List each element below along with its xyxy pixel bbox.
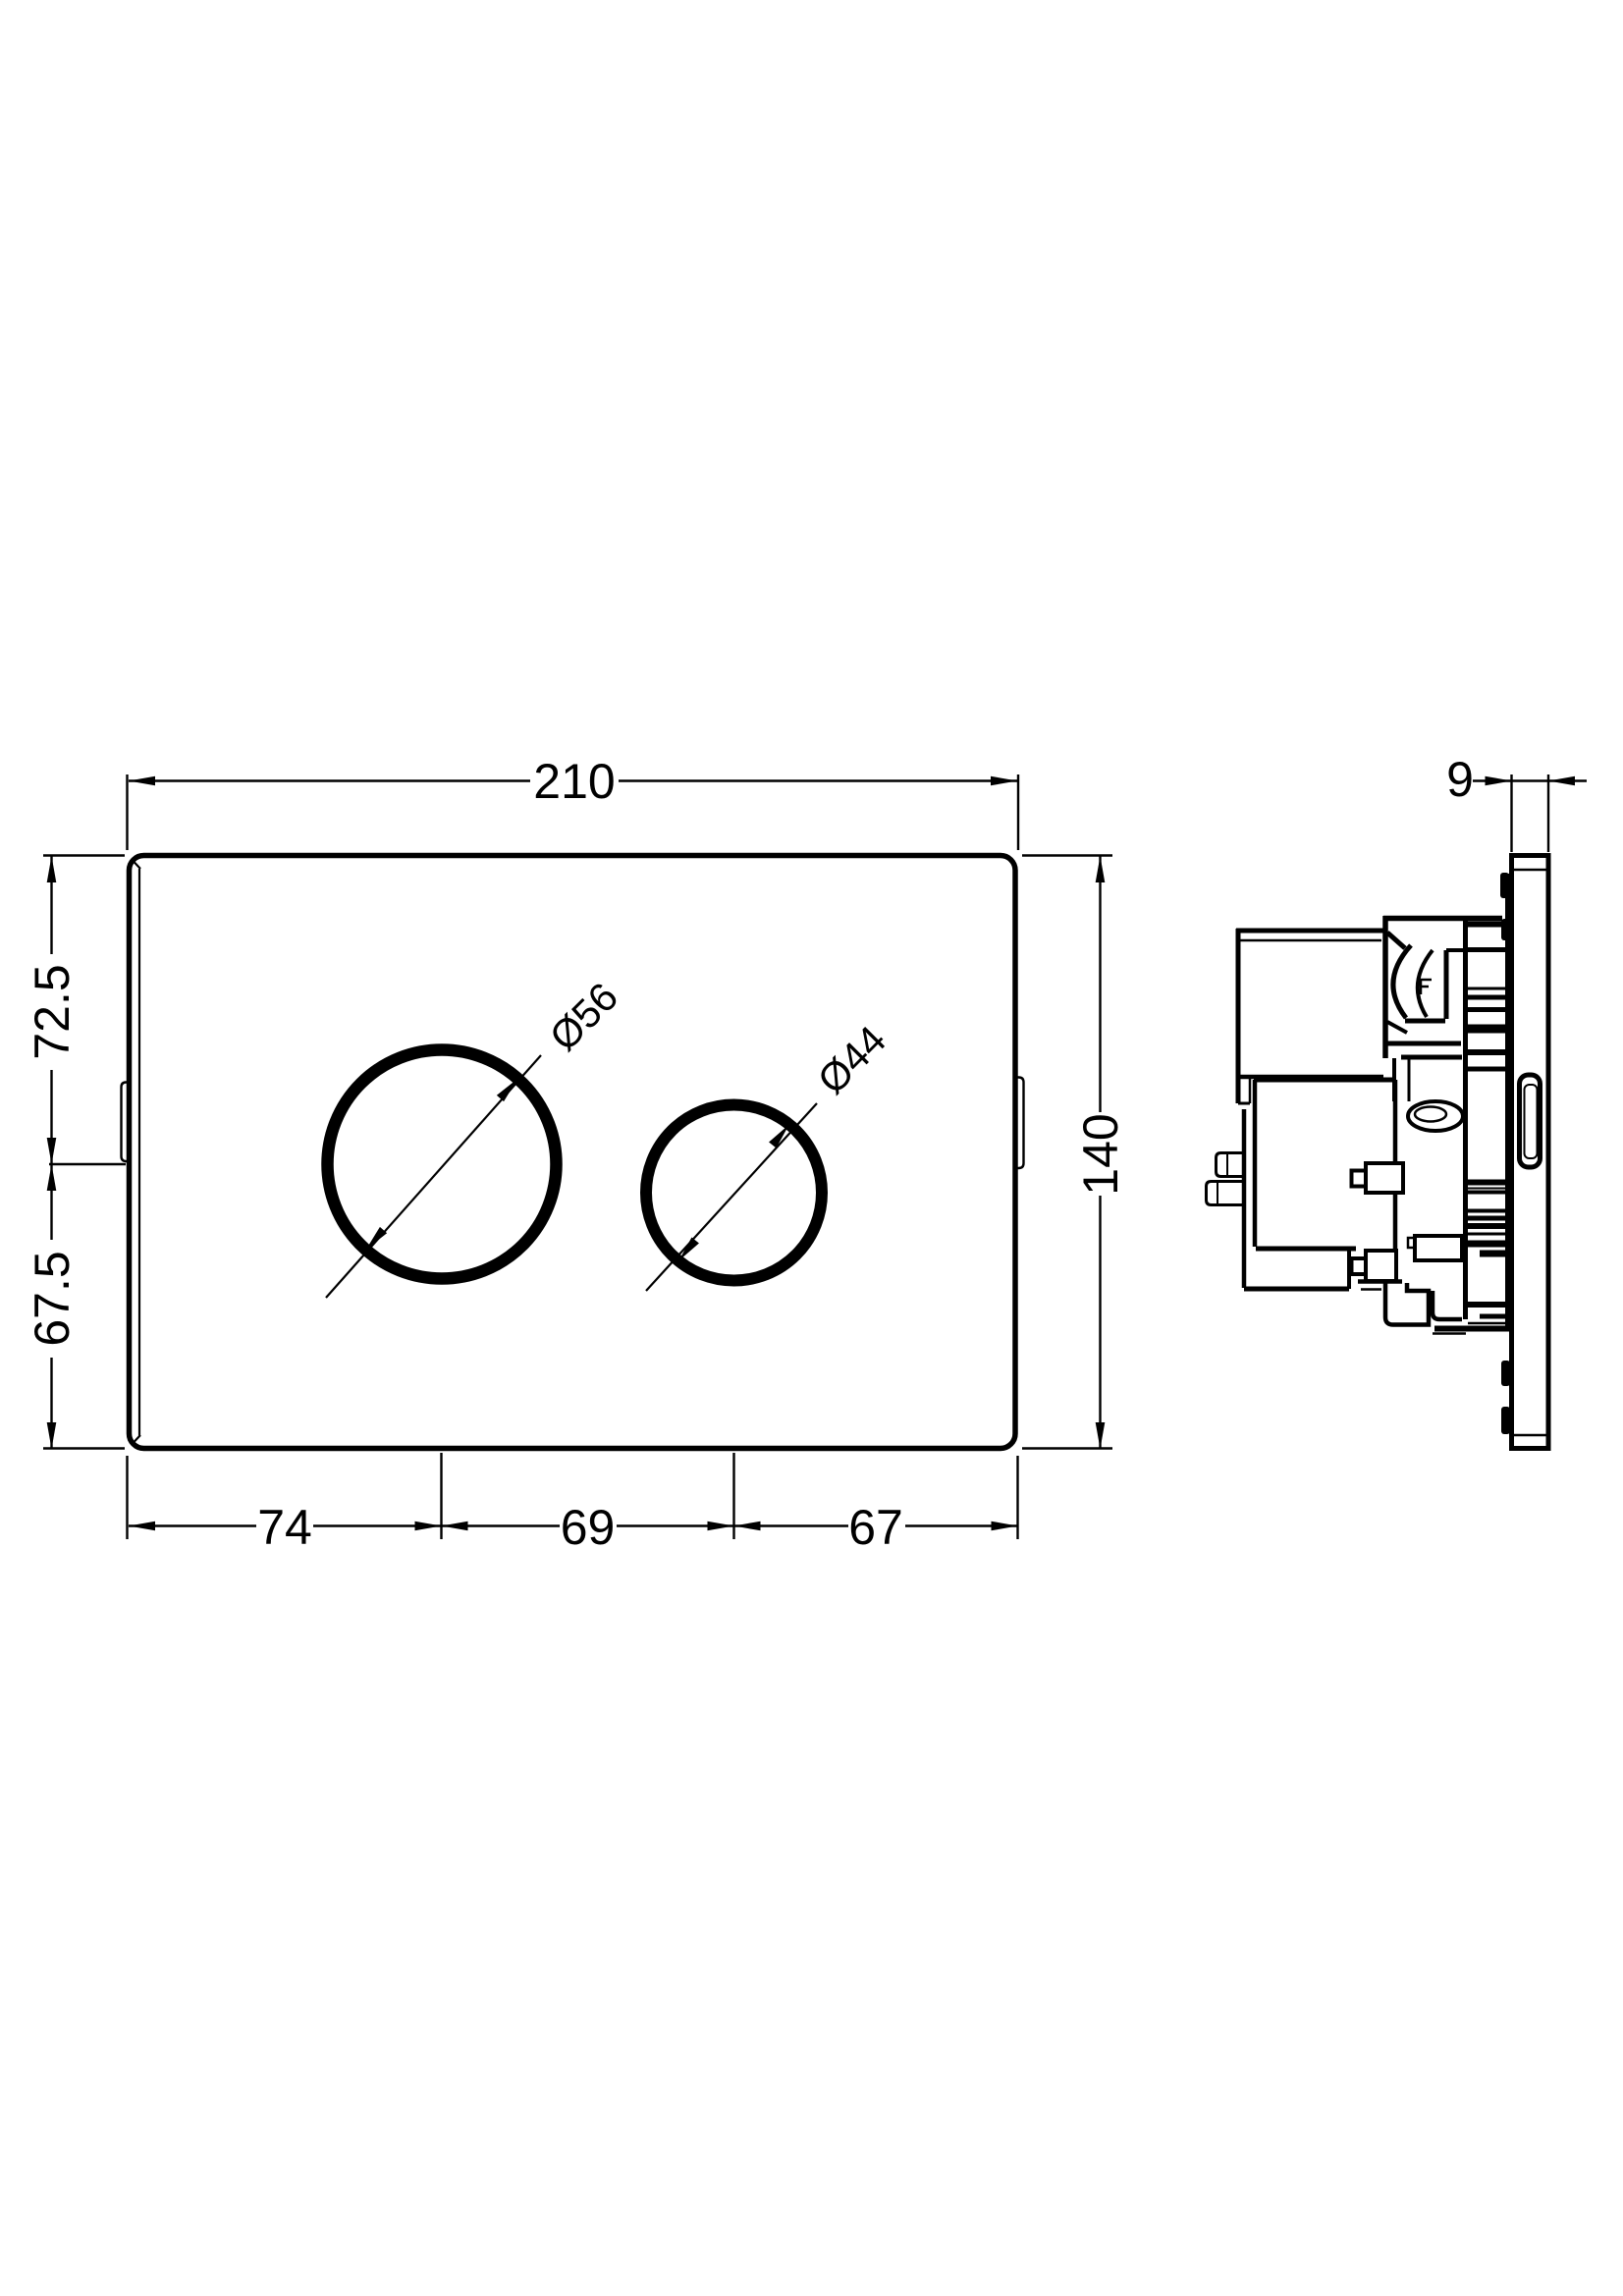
svg-text:74: 74 — [257, 1500, 312, 1555]
svg-text:72.5: 72.5 — [25, 964, 80, 1059]
svg-text:140: 140 — [1073, 1113, 1128, 1195]
svg-text:67: 67 — [848, 1500, 903, 1555]
svg-text:67.5: 67.5 — [25, 1251, 80, 1346]
svg-text:69: 69 — [561, 1500, 616, 1555]
svg-text:9: 9 — [1446, 752, 1474, 807]
svg-text:210: 210 — [533, 754, 615, 809]
